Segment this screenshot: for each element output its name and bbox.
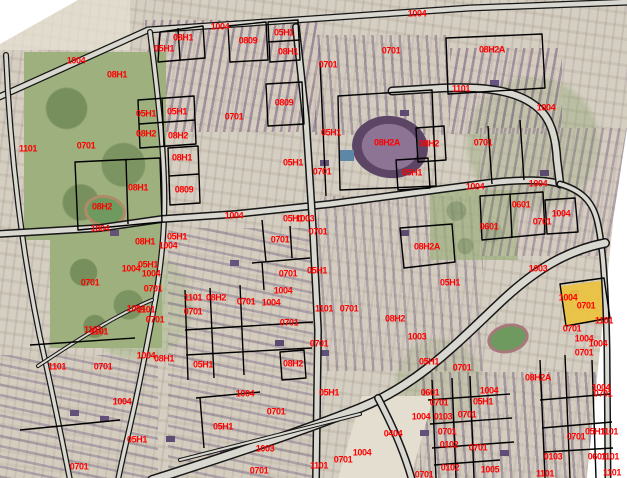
parcel-label: 0701 (267, 408, 285, 417)
map-viewport[interactable]: 100408H108H105H11004080905H108H110040701… (0, 0, 627, 478)
parcel-label: 0103 (434, 413, 452, 422)
parcel-label: 05H1 (473, 398, 493, 407)
parcel-label: 08H2A (479, 46, 505, 55)
parcel-label: 1004 (211, 23, 229, 32)
parcel-label: 0809 (175, 186, 193, 195)
parcel-label: 0701 (577, 302, 595, 311)
parcel-label: 0701 (279, 270, 297, 279)
parcel-label: 0102 (440, 441, 458, 450)
parcel-label: 08H2A (414, 243, 440, 252)
parcel-label: 0701 (146, 316, 164, 325)
parcel-label: 1004 (91, 225, 109, 234)
parcel-label: 1004 (466, 183, 484, 192)
parcel-label: 1004 (142, 270, 160, 279)
parcel-label: 08H2 (206, 294, 226, 303)
parcel-label: 0404 (384, 430, 402, 439)
parcel-label: 0701 (250, 467, 268, 476)
parcel-label: 05H1 (419, 358, 439, 367)
parcel-label: 05H1 (274, 29, 294, 38)
parcel-label: 1101 (90, 328, 108, 337)
parcel-label: 1003 (408, 333, 426, 342)
parcel-label: 0701 (430, 399, 448, 408)
parcel-label: 1004 (412, 413, 430, 422)
parcel-label: 1004 (137, 352, 155, 361)
parcel-label: 0701 (309, 228, 327, 237)
parcel-label: 0701 (533, 218, 551, 227)
parcel-label: 0701 (310, 340, 328, 349)
parcel-label: 08H2 (168, 132, 188, 141)
parcel-label: 1101 (595, 317, 613, 326)
parcel-label: 0701 (469, 444, 487, 453)
parcel-label: 08H1 (135, 238, 155, 247)
parcel-label: 05H1 (283, 159, 303, 168)
parcel-label: 1101 (310, 462, 328, 471)
parcel-label: 08H2 (136, 130, 156, 139)
parcel-label: 0701 (313, 168, 331, 177)
parcel-label: 0701 (474, 139, 492, 148)
parcel-label: 08H1 (154, 355, 174, 364)
parcel-label: 1004 (159, 242, 177, 251)
parcel-label: 0701 (70, 463, 88, 472)
parcel-label: 08H1 (278, 48, 298, 57)
parcel-label: 05H1 (402, 169, 422, 178)
parcel-label: 05H1 (319, 389, 339, 398)
parcel-labels-layer: 100408H108H105H11004080905H108H110040701… (0, 0, 627, 478)
parcel-label: 1004 (122, 265, 140, 274)
parcel-label: 0701 (594, 390, 612, 399)
parcel-label: 0701 (453, 364, 471, 373)
parcel-label: 0701 (94, 363, 112, 372)
parcel-label: 1101 (603, 469, 621, 478)
parcel-label: 0701 (567, 433, 585, 442)
parcel-label: 1101 (137, 306, 155, 315)
parcel-label: 0701 (334, 456, 352, 465)
parcel-label: 05H1 (136, 110, 156, 119)
parcel-label: 08H1 (173, 34, 193, 43)
parcel-label: 0701 (458, 411, 476, 420)
parcel-label: 1003 (529, 265, 547, 274)
parcel-label: 0701 (563, 325, 581, 334)
parcel-label: 05H1 (213, 423, 233, 432)
parcel-label: 1101 (315, 305, 333, 314)
parcel-label: 0701 (575, 349, 593, 358)
parcel-label: 1004 (262, 299, 280, 308)
parcel-label: 0103 (544, 453, 562, 462)
parcel-label: 0701 (280, 319, 298, 328)
parcel-label: 0701 (237, 298, 255, 307)
parcel-label: 1004 (67, 57, 85, 66)
parcel-label: 0601 (480, 223, 498, 232)
parcel-label: 08H2A (374, 139, 400, 148)
parcel-label: 0102 (441, 464, 459, 473)
parcel-label: 05H1 (440, 279, 460, 288)
parcel-label: 08H2 (283, 360, 303, 369)
parcel-label: 05H1 (193, 361, 213, 370)
parcel-label: 08H1 (128, 184, 148, 193)
parcel-label: 1101 (601, 453, 619, 462)
parcel-label: 08H1 (172, 154, 192, 163)
parcel-label: 0701 (340, 305, 358, 314)
parcel-label: 1004 (113, 398, 131, 407)
parcel-label: 1101 (19, 145, 37, 154)
parcel-label: 1004 (537, 104, 555, 113)
parcel-label: 1101 (452, 85, 470, 94)
parcel-label: 05H1 (307, 267, 327, 276)
parcel-label: 0701 (144, 285, 162, 294)
parcel-label: 08H2 (92, 203, 112, 212)
parcel-label: 05H1 (167, 108, 187, 117)
parcel-label: 0701 (415, 471, 433, 478)
parcel-label: 08H2A (525, 374, 551, 383)
parcel-label: 0809 (275, 99, 293, 108)
parcel-label: 1004 (552, 210, 570, 219)
parcel-label: 1004 (236, 390, 254, 399)
parcel-label: 1004 (353, 449, 371, 458)
parcel-label: 0809 (239, 37, 257, 46)
parcel-label: 08H1 (107, 71, 127, 80)
parcel-label: 1004 (480, 387, 498, 396)
parcel-label: 0701 (319, 61, 337, 70)
parcel-label: 1005 (481, 466, 499, 475)
parcel-label: 05H1 (127, 436, 147, 445)
parcel-label: 05H1 (154, 45, 174, 54)
parcel-label: 1004 (529, 180, 547, 189)
parcel-label: 05H1 (321, 129, 341, 138)
parcel-label: 0701 (225, 113, 243, 122)
parcel-label: 0601 (512, 201, 530, 210)
parcel-label: 1101 (536, 470, 554, 478)
parcel-label: 1004 (559, 294, 577, 303)
parcel-label: 0701 (81, 279, 99, 288)
parcel-label: 1101 (600, 428, 618, 437)
parcel-label: 0701 (382, 47, 400, 56)
parcel-label: 08H2 (385, 315, 405, 324)
parcel-label: 0701 (77, 142, 95, 151)
parcel-label: 1004 (225, 212, 243, 221)
parcel-label: 0701 (184, 308, 202, 317)
parcel-label: 0601 (421, 389, 439, 398)
parcel-label: 1004 (274, 287, 292, 296)
parcel-label: 0701 (271, 236, 289, 245)
parcel-label: 1101 (184, 294, 202, 303)
parcel-label: 1004 (408, 10, 426, 19)
parcel-label: 08H2 (419, 140, 439, 149)
parcel-label: 1003 (256, 445, 274, 454)
parcel-label: 1003 (296, 215, 314, 224)
parcel-label: 0701 (438, 428, 456, 437)
parcel-label: 1101 (48, 363, 66, 372)
